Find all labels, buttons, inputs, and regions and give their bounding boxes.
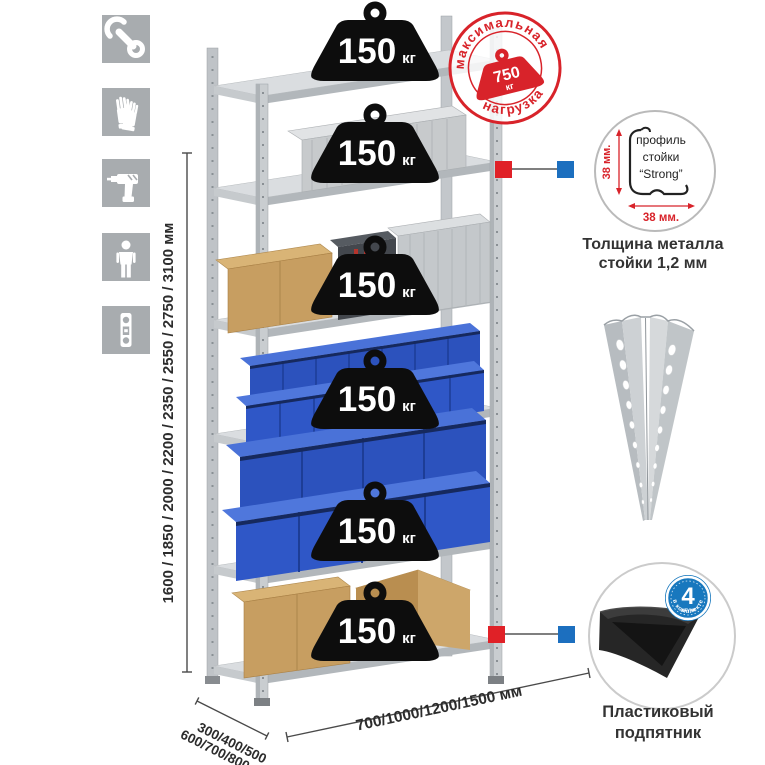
upright-post-image [604,315,694,521]
profile-callout-circle: 38 мм. 38 мм. профиль стойки “Strong” [595,111,715,231]
callout-connector-top [495,161,574,178]
weight-unit: кг [402,530,416,547]
callout-connector-bottom [488,626,575,643]
weight-unit: кг [402,398,416,415]
foot-caption-line1: Пластиковый [602,703,713,721]
weight-value: 150 [338,134,396,173]
weight-unit: кг [402,152,416,169]
weight-unit: кг [402,630,416,647]
weight-value: 150 [338,380,396,419]
connector-blue-square [557,161,574,178]
foot-callout-circle: 4 штуки в комплекте [589,563,735,709]
person-icon [102,233,150,281]
weight-unit: кг [402,284,416,301]
profile-dim-vertical-label: 38 мм. [601,145,613,180]
metal-caption-line2: стойки 1,2 мм [599,255,708,272]
wrench-icon [102,15,150,63]
connector-red-square [495,161,512,178]
depth-dimension: 300/400/500 600/700/800 мм [178,697,279,765]
profile-label-line3: “Strong” [639,167,682,181]
weight-badge: 150 кг [311,5,439,81]
profile-label-line2: стойки [643,150,680,164]
height-dimension: 1600 / 1850 / 2000 / 2200 / 2350 / 2550 … [160,153,192,672]
weight-value: 150 [338,32,396,71]
connector-red-square [488,626,505,643]
weight-value: 150 [338,266,396,305]
metal-caption-line1: Толщина металла [582,236,723,253]
benefit-icons [102,15,150,354]
profile-dim-horizontal-label: 38 мм. [643,212,679,224]
width-dimension-label: 700/1000/1200/1500 мм [354,683,523,735]
spirit-level-icon [102,306,150,354]
connector-blue-square [558,626,575,643]
weight-value: 150 [338,512,396,551]
product-infographic: 1600 / 1850 / 2000 / 2200 / 2350 / 2550 … [0,0,765,765]
kit-badge-value: 4 [681,583,695,610]
profile-label-line1: профиль [636,133,686,147]
kit-badge: 4 штуки в комплекте [666,576,711,621]
weight-value: 150 [338,612,396,651]
weight-unit: кг [402,50,416,67]
gloves-icon [102,88,150,136]
width-dimension: 700/1000/1200/1500 мм [286,668,590,742]
infographic-canvas: 1600 / 1850 / 2000 / 2200 / 2350 / 2550 … [0,0,765,765]
foot-caption-line2: подпятник [615,724,702,742]
height-dimension-label: 1600 / 1850 / 2000 / 2200 / 2350 / 2550 … [160,223,177,604]
drill-icon [102,159,150,207]
